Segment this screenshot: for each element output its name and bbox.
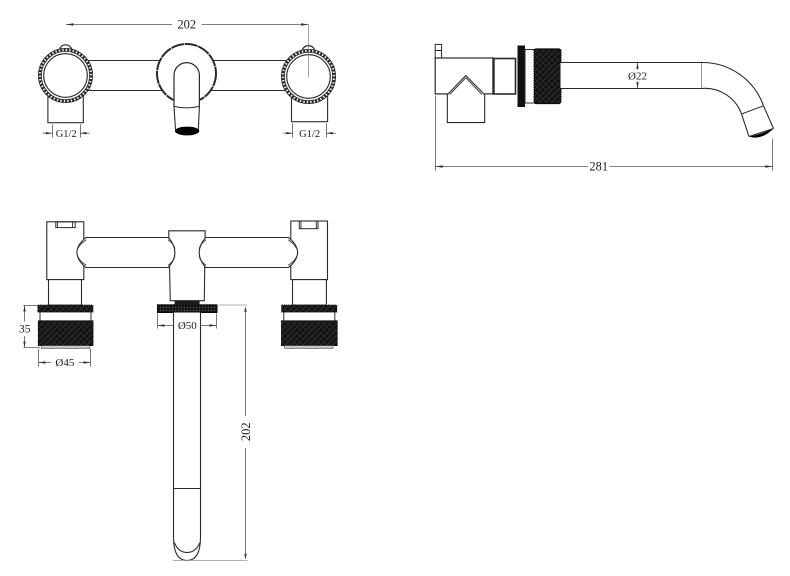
svg-text:G1/2: G1/2	[56, 129, 77, 140]
svg-text:202: 202	[177, 17, 196, 31]
svg-text:Ø22: Ø22	[628, 70, 647, 82]
svg-text:281: 281	[589, 159, 608, 173]
svg-text:Ø45: Ø45	[55, 357, 74, 369]
svg-text:Ø50: Ø50	[178, 320, 197, 332]
svg-text:202: 202	[239, 422, 253, 441]
svg-text:35: 35	[19, 323, 31, 335]
svg-text:G1/2: G1/2	[299, 129, 320, 140]
